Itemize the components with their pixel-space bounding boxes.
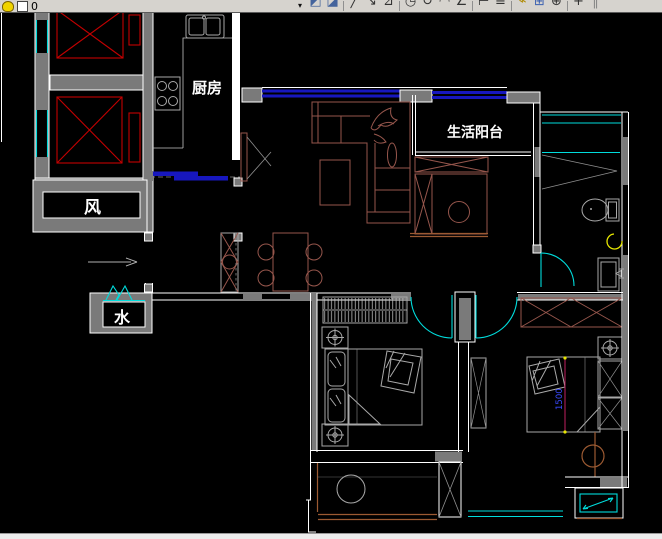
water-shaft: 水: [90, 286, 152, 333]
kitchen-wall: [232, 13, 240, 160]
drawing-canvas[interactable]: 风 水: [0, 13, 662, 533]
draw-line-icon[interactable]: ╱: [346, 0, 363, 12]
toolbar-separator: [567, 1, 568, 11]
toolbar: 0 ▾ ◩◪╱↘⊿◷↻◠∠⊢≡⌁⊞⊕+‖: [0, 0, 662, 13]
water-shaft-label: 水: [114, 308, 131, 327]
toolbar-separator: [511, 1, 512, 11]
toolbar-separator: [343, 1, 344, 11]
make-object-layer-current-icon[interactable]: ◩: [307, 0, 324, 12]
cad-application: 0 ▾ ◩◪╱↘⊿◷↻◠∠⊢≡⌁⊞⊕+‖: [0, 0, 662, 539]
bed-dimension-text: 1500: [555, 388, 565, 410]
layer-color-swatch: [17, 1, 28, 12]
match-properties-icon[interactable]: ⌁: [514, 0, 531, 12]
layer-on-bulb-icon: [2, 1, 14, 12]
pan-icon[interactable]: +: [570, 0, 587, 12]
toolbar-end-grip[interactable]: ‖: [587, 0, 604, 12]
statusbar-strip: [0, 533, 662, 539]
air-shaft: 风: [33, 180, 147, 232]
arc-tool-icon[interactable]: ◠: [436, 0, 453, 12]
layer-previous-icon[interactable]: ◪: [324, 0, 341, 12]
layer-dropdown-arrow-icon[interactable]: ▾: [293, 0, 307, 12]
air-shaft-label: 风: [84, 198, 101, 218]
center-snap-icon[interactable]: ⊕: [548, 0, 565, 12]
toolbar-separator: [399, 1, 400, 11]
kitchen-label: 厨房: [192, 79, 222, 97]
edit-polyline-icon[interactable]: ⊿: [380, 0, 397, 12]
insert-block-icon[interactable]: ⊞: [531, 0, 548, 12]
layer-combo[interactable]: 0 ▾: [0, 0, 307, 12]
toolbar-separator: [472, 1, 473, 11]
measure-angle-icon[interactable]: ∠: [453, 0, 470, 12]
dim-linear-icon[interactable]: ⊢: [475, 0, 492, 12]
current-layer-name: 0: [31, 1, 38, 12]
draw-polyline-icon[interactable]: ↘: [363, 0, 380, 12]
rotate-tool-icon[interactable]: ↻: [419, 0, 436, 12]
toolbar-icons: ◩◪╱↘⊿◷↻◠∠⊢≡⌁⊞⊕+‖: [307, 0, 662, 12]
circle-tool-icon[interactable]: ◷: [402, 0, 419, 12]
dim-continue-icon[interactable]: ≡: [492, 0, 509, 12]
living-balcony-label: 生活阳台: [447, 124, 503, 141]
wardrobe-left: [323, 297, 407, 323]
